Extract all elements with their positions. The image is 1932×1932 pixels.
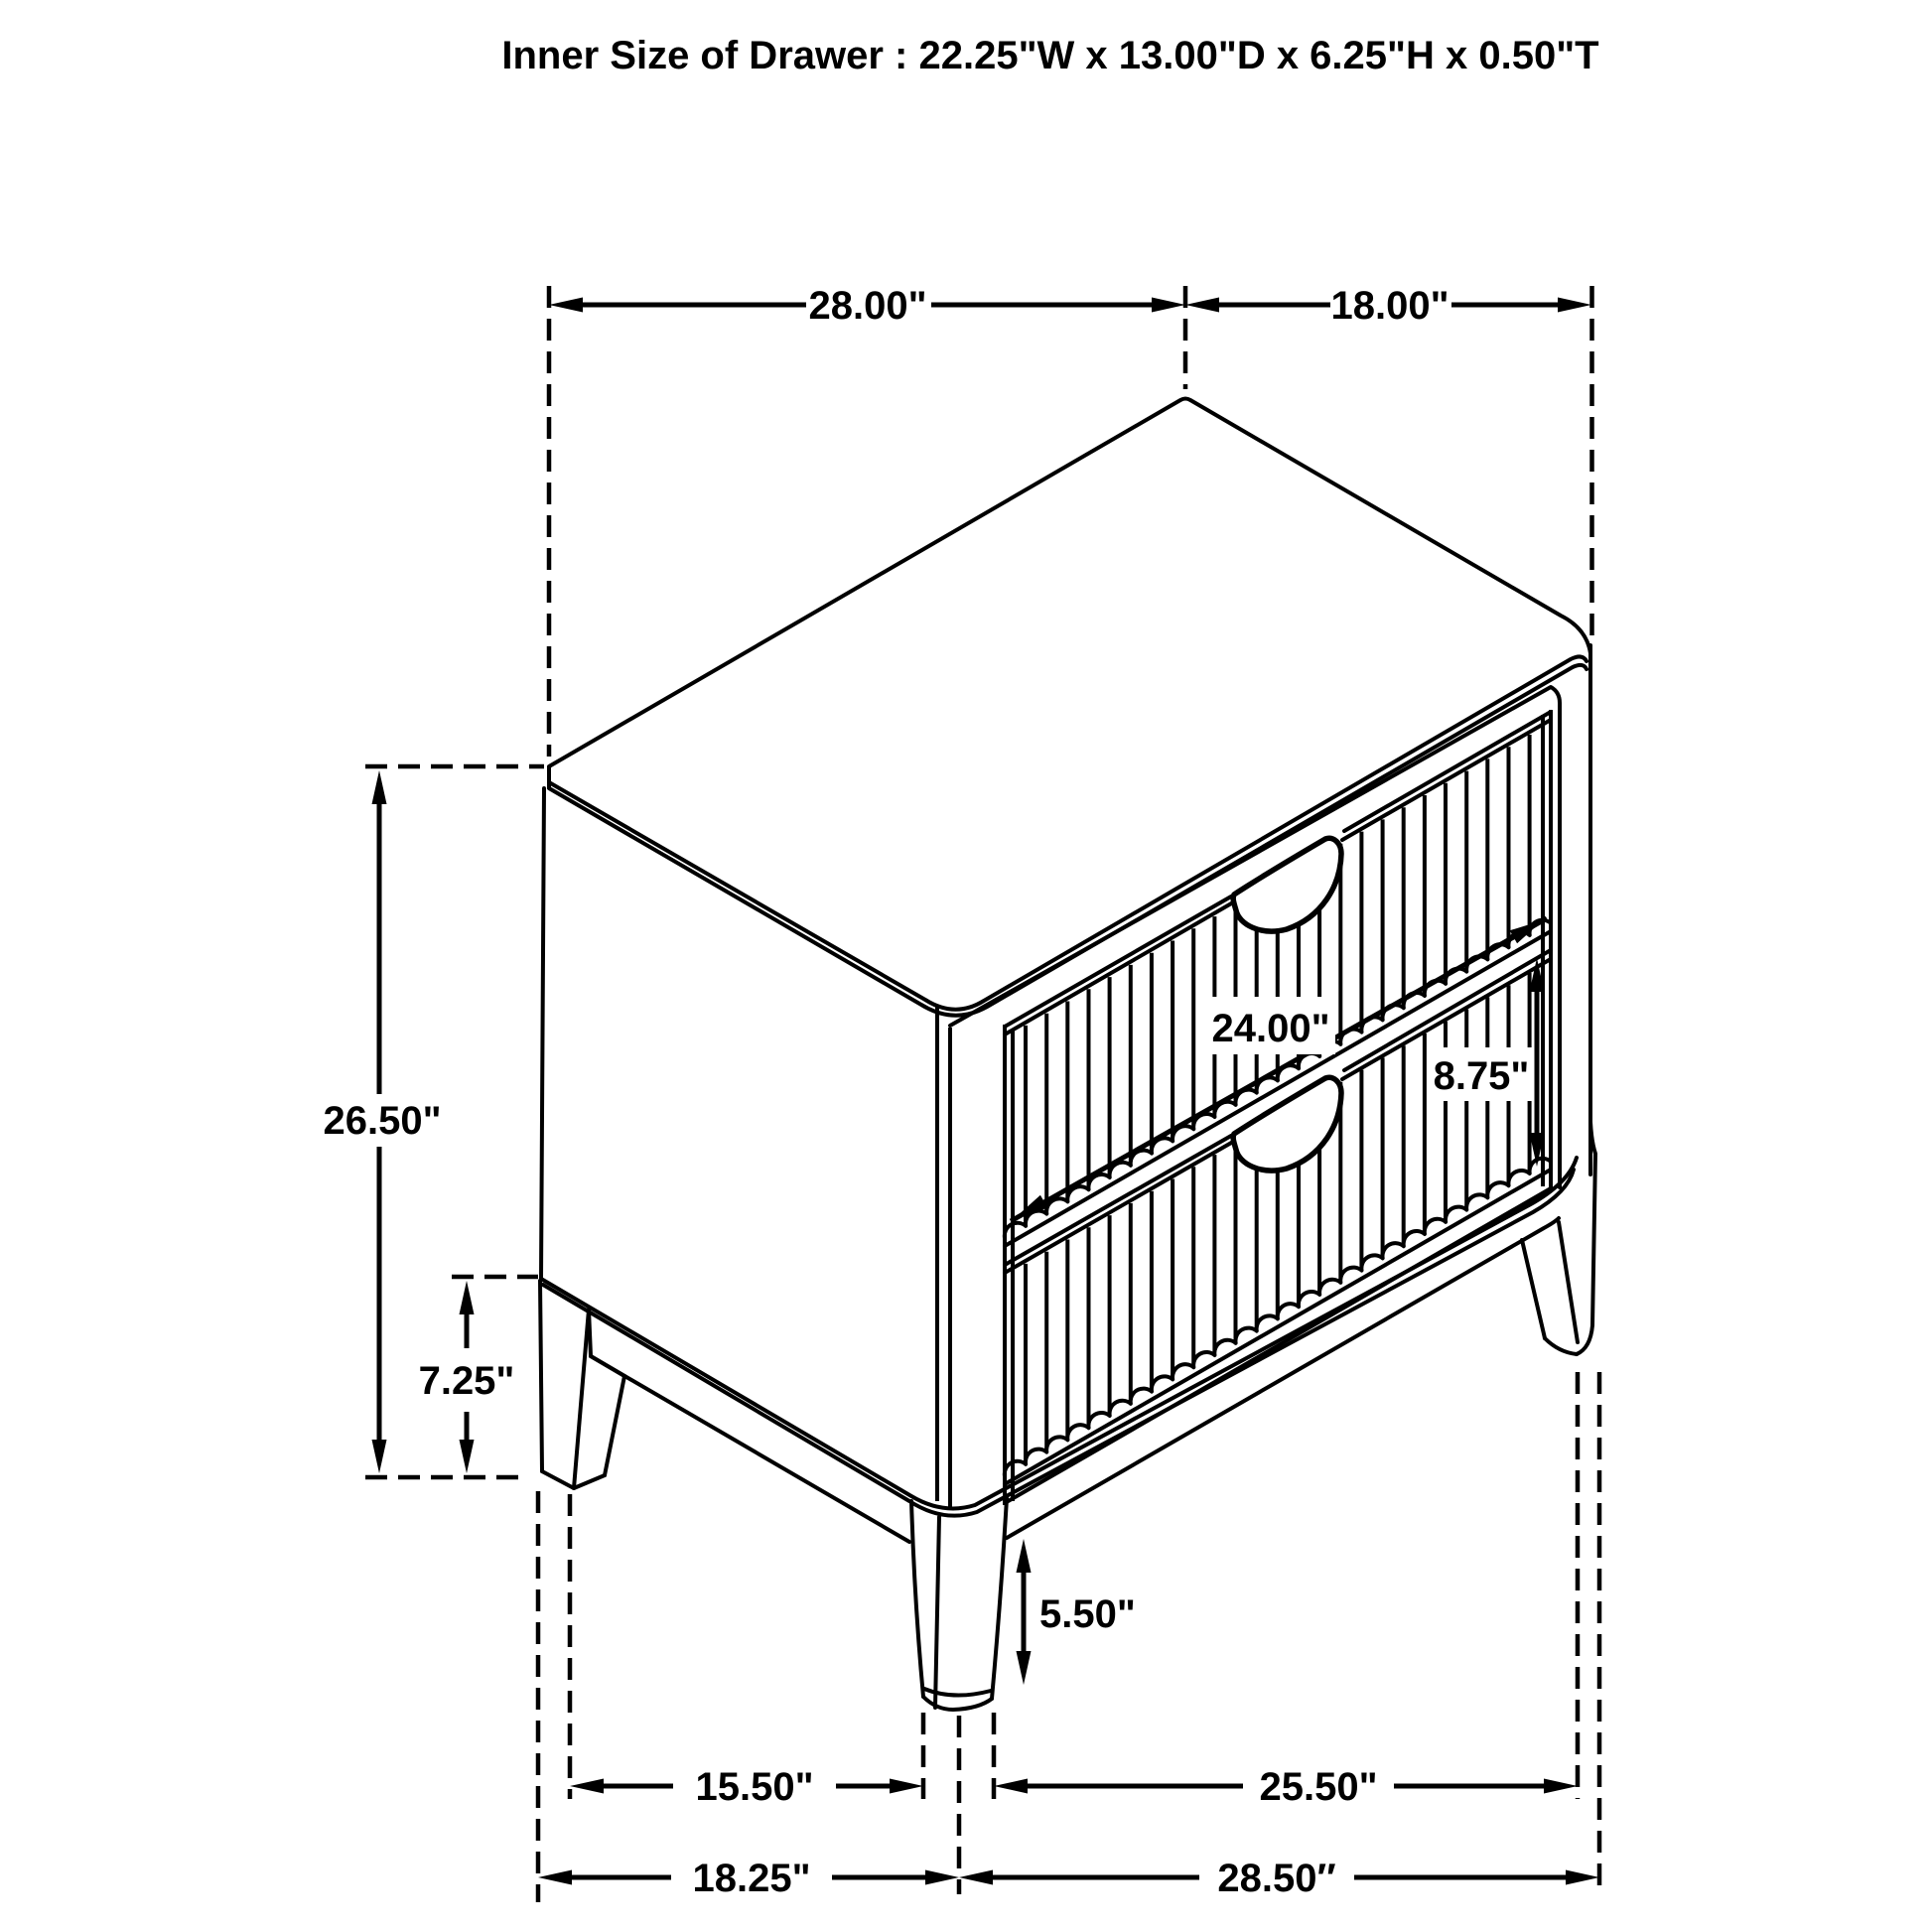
svg-text:18.25": 18.25" (692, 1857, 810, 1900)
svg-text:7.25": 7.25" (419, 1359, 515, 1403)
svg-text:24.00": 24.00" (1211, 1007, 1329, 1050)
svg-text:28.50″: 28.50″ (1217, 1857, 1335, 1900)
svg-text:15.50": 15.50" (695, 1765, 813, 1809)
svg-text:Inner Size of Drawer : 22.25"W: Inner Size of Drawer : 22.25"W x 13.00"D… (501, 34, 1598, 77)
svg-text:8.75": 8.75" (1434, 1054, 1530, 1098)
svg-text:18.00": 18.00" (1330, 284, 1449, 328)
svg-text:25.50": 25.50" (1259, 1765, 1377, 1809)
svg-text:5.50": 5.50" (1039, 1592, 1136, 1636)
svg-text:28.00": 28.00" (808, 284, 926, 328)
svg-text:26.50": 26.50" (323, 1099, 441, 1143)
